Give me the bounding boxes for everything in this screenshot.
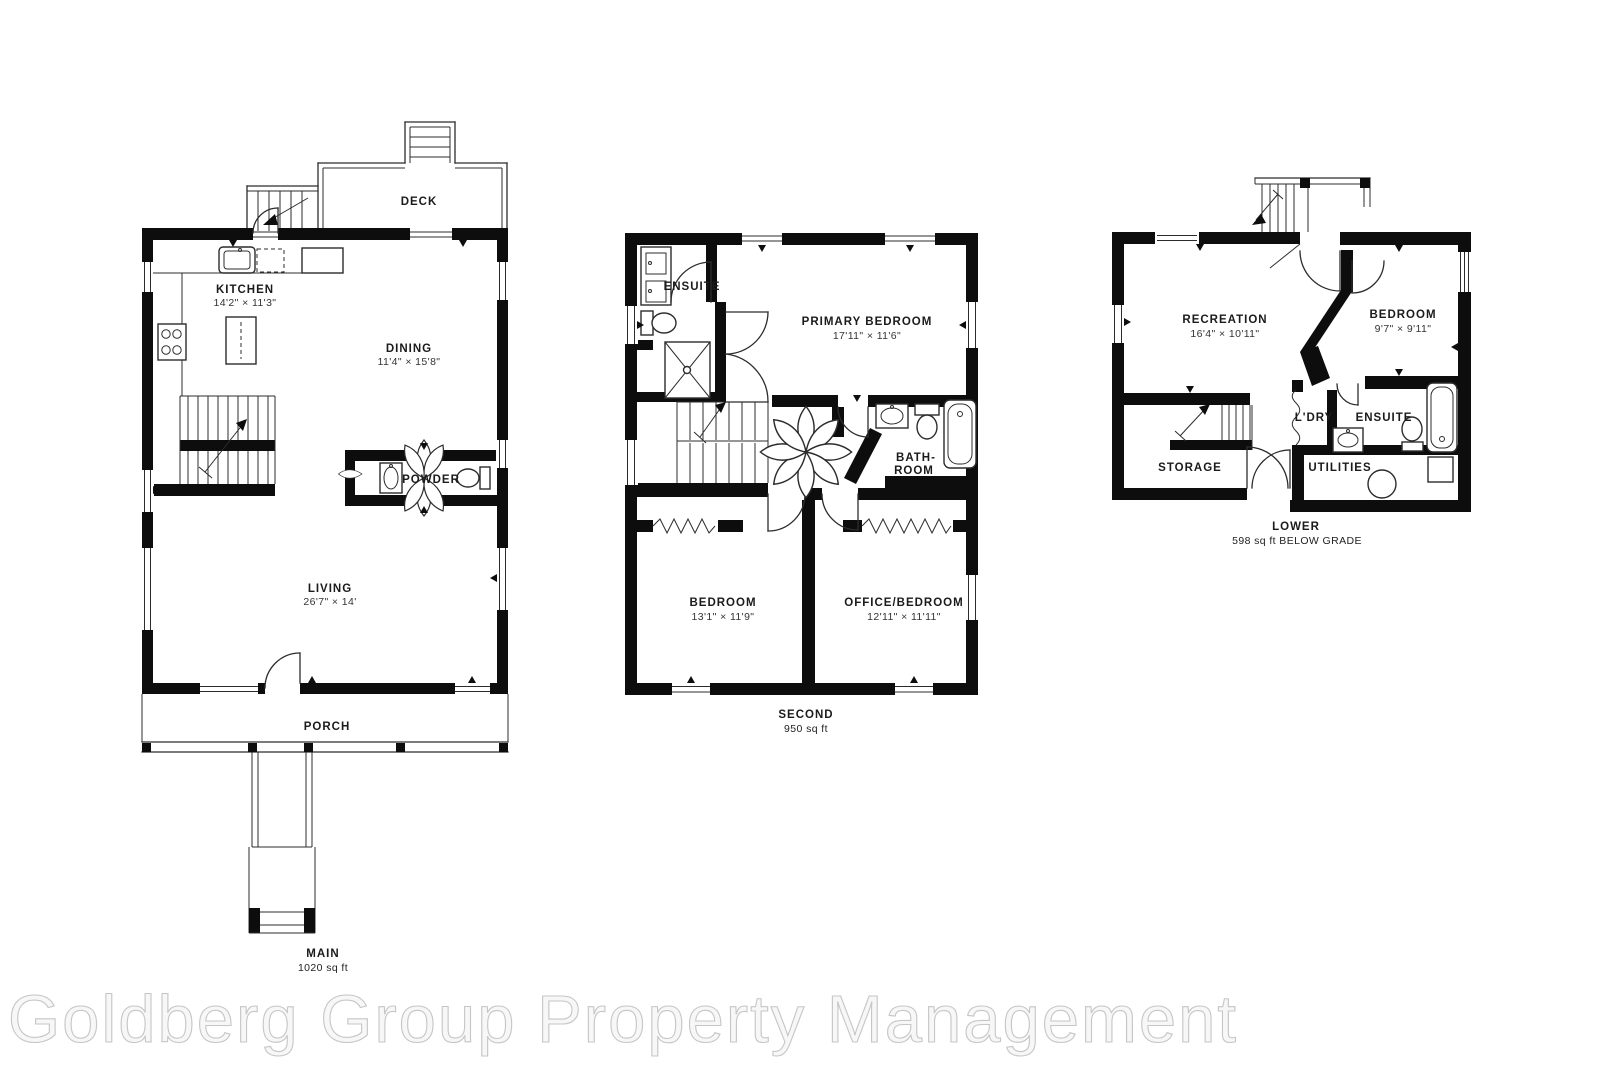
bedroom-label: BEDROOM [689,597,756,609]
second-floor-label: SECOND [778,709,833,721]
hall-door-fan [760,406,851,497]
main-floor-label: MAIN [306,948,339,960]
bedroom-dims: 13'1" × 11'9" [692,611,755,623]
main-floor-plan: DECK KITCHEN 14'2" × 11'3" DINING 11'4" … [141,122,509,974]
bathroom-label-line2: ROOM [894,465,934,477]
recreation-label: RECREATION [1182,314,1267,326]
second-floor-plan: ENSUITE PRIMARY BEDROOM 17'11" × 11'6" B… [624,232,979,735]
water-heater [1368,470,1396,498]
deck [318,122,507,231]
lower-ensuite-toilet-tank [1402,442,1423,451]
deck-label: DECK [401,196,438,208]
stove [158,324,186,360]
kitchen-dims: 14'2" × 11'3" [214,297,277,309]
floorplan-page: DECK KITCHEN 14'2" × 11'3" DINING 11'4" … [0,0,1620,1080]
fridge [302,248,343,273]
dining-dims: 11'4" × 15'8" [378,356,441,368]
lower-floor-plan: RECREATION 16'4" × 10'11" BEDROOM 9'7" ×… [1111,178,1472,547]
ensuite-fixtures [641,247,710,398]
utilities-label: UTILITIES [1308,462,1371,474]
ensuite-label: ENSUITE [664,281,721,293]
utilities-fixtures [1368,457,1453,498]
lower-exterior-stairs [1252,178,1370,232]
recreation-dims: 16'4" × 10'11" [1190,328,1259,340]
lower-bedroom-label: BEDROOM [1369,309,1436,321]
office-bedroom-dims: 12'11" × 11'11" [867,611,941,623]
powder-toilet-tank [480,467,490,489]
bathroom-toilet [917,415,937,439]
kitchen-label: KITCHEN [216,284,274,296]
lower-floor-label: LOWER [1272,521,1320,533]
dining-label: DINING [386,343,432,355]
storage-label: STORAGE [1158,462,1222,474]
closet-door [338,470,362,478]
second-floor-area: 950 sq ft [784,723,828,735]
lower-floor-area: 598 sq ft BELOW GRADE [1232,535,1362,547]
watermark-text: Goldberg Group Property Management [8,982,1238,1057]
powder-label: POWDER [402,474,460,486]
living-dims: 26'7" × 14' [303,596,356,608]
main-walls [142,228,508,694]
office-bedroom-label: OFFICE/BEDROOM [844,597,963,609]
primary-bedroom-label: PRIMARY BEDROOM [802,316,933,328]
porch-label: PORCH [304,721,351,733]
second-stairs [677,402,768,483]
ensuite-toilet [652,313,676,333]
utility-box [1428,457,1453,482]
lower-bedroom-dims: 9'7" × 9'11" [1375,323,1432,335]
ensuite-toilet-tank [641,311,653,335]
floor-plan-svg: DECK KITCHEN 14'2" × 11'3" DINING 11'4" … [0,0,1620,1080]
main-wall-markers [153,240,497,683]
walkway-steps [249,752,315,933]
lower-ensuite-label: ENSUITE [1356,412,1413,424]
bathroom-label-line1: BATH- [896,452,936,464]
main-windows [141,232,509,695]
powder-toilet [457,469,479,487]
dishwasher [257,249,284,272]
main-exterior-stairs [247,186,318,231]
kitchen-fixtures [153,247,343,396]
primary-bedroom-dims: 17'11" × 11'6" [833,330,901,342]
bathroom-toilet-tank [915,404,939,415]
living-label: LIVING [308,583,352,595]
laundry-label: L'DRY [1295,412,1334,424]
main-floor-area: 1020 sq ft [298,962,348,974]
